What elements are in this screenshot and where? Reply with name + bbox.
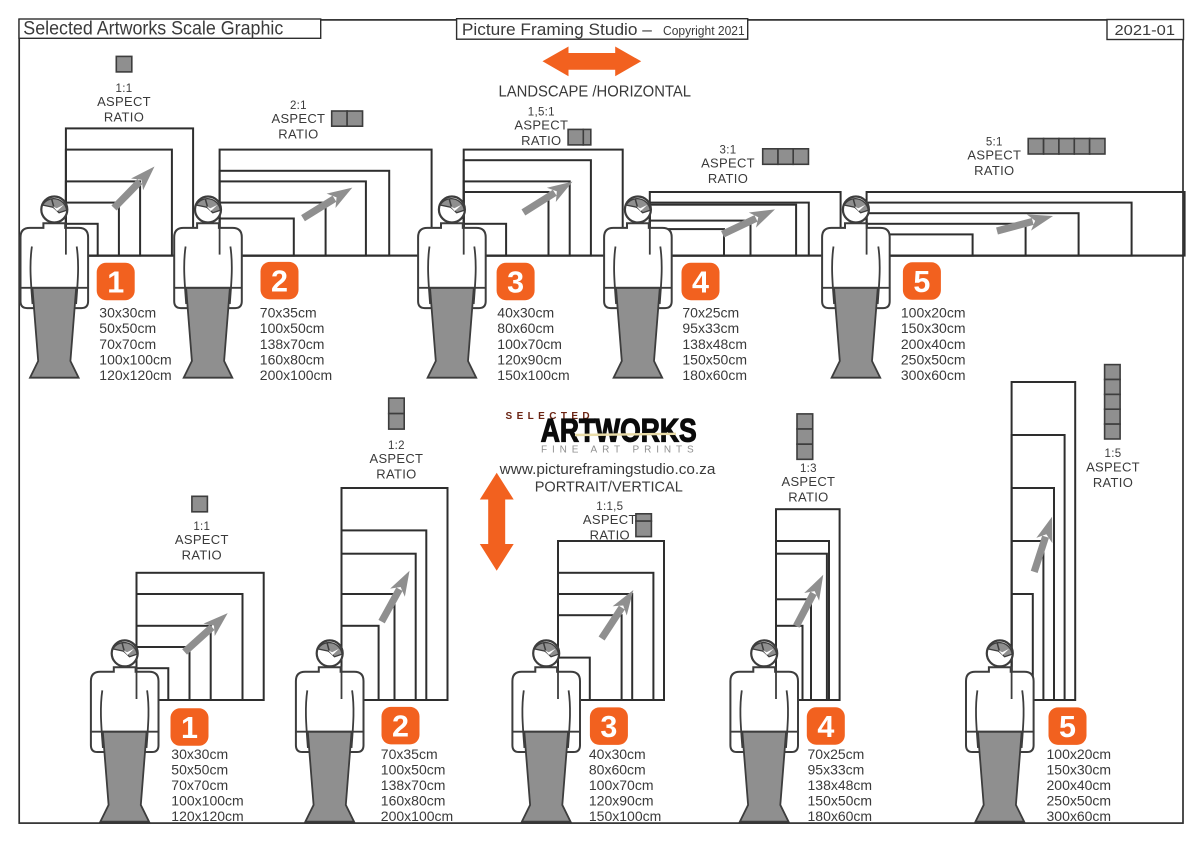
svg-text:200x100cm: 200x100cm (260, 367, 332, 383)
svg-text:ASPECT: ASPECT (514, 118, 568, 133)
svg-text:200x40cm: 200x40cm (1047, 777, 1112, 793)
svg-text:ASPECT: ASPECT (175, 532, 229, 547)
svg-text:70x25cm: 70x25cm (682, 305, 739, 321)
svg-text:50x50cm: 50x50cm (171, 761, 228, 777)
svg-text:100x50cm: 100x50cm (260, 320, 325, 336)
svg-text:120x90cm: 120x90cm (497, 351, 562, 367)
svg-text:95x33cm: 95x33cm (682, 320, 739, 336)
svg-text:100x70cm: 100x70cm (589, 777, 654, 793)
svg-text:2: 2 (271, 265, 288, 299)
svg-text:120x120cm: 120x120cm (171, 808, 243, 824)
svg-text:2021-01: 2021-01 (1115, 23, 1176, 39)
svg-text:150x100cm: 150x100cm (497, 367, 569, 383)
svg-text:120x120cm: 120x120cm (99, 367, 171, 383)
svg-text:Picture Framing Studio –: Picture Framing Studio – (462, 20, 653, 39)
svg-text:40x30cm: 40x30cm (497, 305, 554, 321)
svg-text:LANDSCAPE /HORIZONTAL: LANDSCAPE /HORIZONTAL (499, 84, 692, 101)
svg-text:150x30cm: 150x30cm (901, 320, 966, 336)
svg-text:120x90cm: 120x90cm (589, 792, 654, 808)
svg-text:ASPECT: ASPECT (97, 94, 151, 109)
svg-text:100x100cm: 100x100cm (99, 351, 171, 367)
svg-text:RATIO: RATIO (104, 110, 144, 125)
svg-text:PORTRAIT/VERTICAL: PORTRAIT/VERTICAL (535, 479, 683, 496)
svg-text:160x80cm: 160x80cm (260, 351, 325, 367)
svg-text:50x50cm: 50x50cm (99, 320, 156, 336)
svg-text:3: 3 (600, 710, 617, 744)
svg-text:80x60cm: 80x60cm (589, 761, 646, 777)
svg-text:250x50cm: 250x50cm (901, 351, 966, 367)
svg-text:RATIO: RATIO (182, 548, 222, 563)
svg-text:RATIO: RATIO (521, 133, 561, 148)
svg-text:100x50cm: 100x50cm (381, 761, 446, 777)
svg-text:RATIO: RATIO (974, 163, 1014, 178)
svg-text:RATIO: RATIO (278, 127, 318, 142)
svg-text:30x30cm: 30x30cm (99, 305, 156, 321)
svg-text:ASPECT: ASPECT (369, 451, 423, 466)
svg-text:5: 5 (1059, 710, 1076, 744)
svg-text:100x100cm: 100x100cm (171, 792, 243, 808)
svg-text:70x35cm: 70x35cm (260, 305, 317, 321)
svg-text:138x70cm: 138x70cm (381, 777, 446, 793)
svg-text:70x35cm: 70x35cm (381, 746, 438, 762)
svg-text:300x60cm: 300x60cm (901, 367, 966, 383)
svg-text:100x20cm: 100x20cm (1047, 746, 1112, 762)
svg-text:100x70cm: 100x70cm (497, 336, 562, 352)
svg-text:138x70cm: 138x70cm (260, 336, 325, 352)
svg-text:ASPECT: ASPECT (781, 474, 835, 489)
svg-text:Copyright 2021: Copyright 2021 (663, 24, 745, 38)
svg-text:300x60cm: 300x60cm (1047, 808, 1112, 824)
svg-text:RATIO: RATIO (1093, 475, 1133, 490)
svg-text:RATIO: RATIO (376, 467, 416, 482)
svg-text:RATIO: RATIO (788, 490, 828, 505)
svg-text:180x60cm: 180x60cm (808, 808, 873, 824)
svg-text:Selected Artworks Scale Graphi: Selected Artworks Scale Graphic (23, 19, 283, 40)
svg-text:150x50cm: 150x50cm (682, 351, 747, 367)
svg-text:ASPECT: ASPECT (1086, 459, 1140, 474)
svg-text:160x80cm: 160x80cm (381, 792, 446, 808)
svg-text:250x50cm: 250x50cm (1047, 792, 1112, 808)
svg-text:150x50cm: 150x50cm (808, 792, 873, 808)
svg-text:95x33cm: 95x33cm (808, 761, 865, 777)
svg-text:200x100cm: 200x100cm (381, 808, 453, 824)
svg-text:4: 4 (817, 710, 834, 744)
svg-text:138x48cm: 138x48cm (808, 777, 873, 793)
svg-text:138x48cm: 138x48cm (682, 336, 747, 352)
svg-text:1: 1 (107, 265, 124, 299)
svg-text:RATIO: RATIO (590, 528, 630, 543)
svg-text:www.pictureframingstudio.co.za: www.pictureframingstudio.co.za (499, 461, 716, 478)
svg-text:ASPECT: ASPECT (701, 156, 755, 171)
svg-text:2: 2 (392, 710, 409, 744)
svg-text:1: 1 (181, 711, 198, 745)
svg-text:ASPECT: ASPECT (271, 111, 325, 126)
svg-text:ASPECT: ASPECT (967, 147, 1021, 162)
svg-text:70x70cm: 70x70cm (99, 336, 156, 352)
svg-text:ARTWORKS: ARTWORKS (541, 412, 697, 448)
svg-text:70x25cm: 70x25cm (808, 746, 865, 762)
svg-text:3: 3 (507, 265, 524, 299)
svg-text:40x30cm: 40x30cm (589, 746, 646, 762)
svg-text:180x60cm: 180x60cm (682, 367, 747, 383)
svg-text:FINE ART PRINTS: FINE ART PRINTS (541, 444, 699, 455)
svg-text:ASPECT: ASPECT (583, 512, 637, 527)
svg-text:5: 5 (913, 265, 930, 299)
svg-text:150x100cm: 150x100cm (589, 808, 661, 824)
svg-text:70x70cm: 70x70cm (171, 777, 228, 793)
svg-text:80x60cm: 80x60cm (497, 320, 554, 336)
svg-text:RATIO: RATIO (708, 171, 748, 186)
svg-text:100x20cm: 100x20cm (901, 305, 966, 321)
svg-text:4: 4 (692, 265, 709, 299)
svg-text:150x30cm: 150x30cm (1047, 761, 1112, 777)
svg-text:30x30cm: 30x30cm (171, 746, 228, 762)
svg-text:200x40cm: 200x40cm (901, 336, 966, 352)
